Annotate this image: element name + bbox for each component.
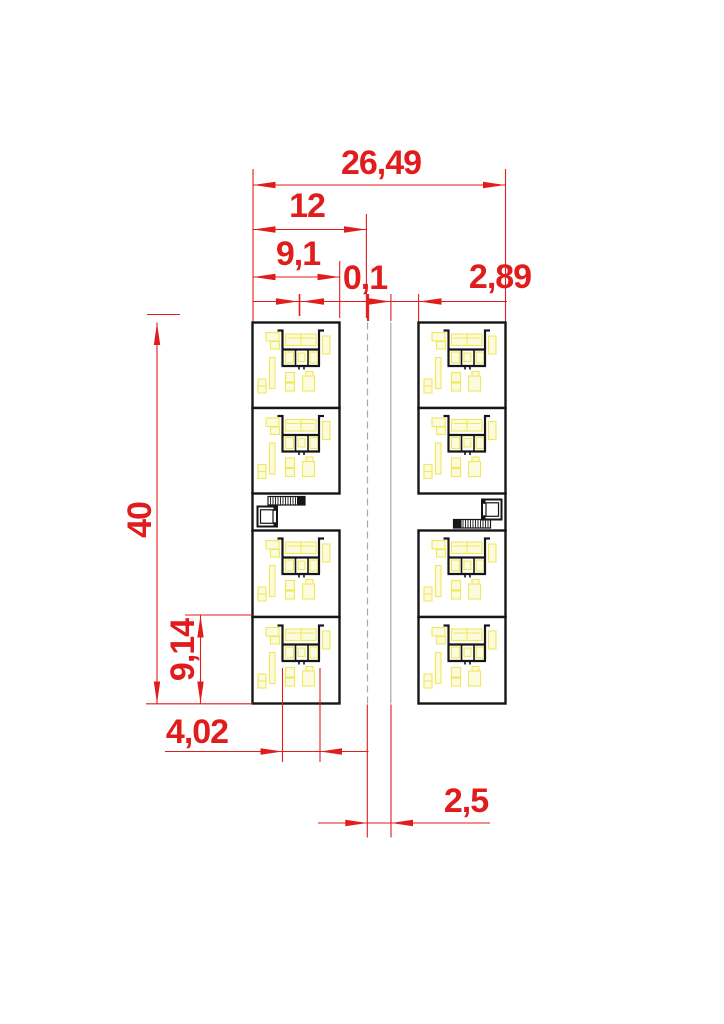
dim-label-total-height: 40 [123, 502, 157, 538]
dim-label-total-width: 26,49 [341, 146, 421, 180]
dim-label-building-width: 12 [289, 189, 325, 223]
dim-label-corridor-width: 2,89 [469, 260, 531, 294]
dim-label-pod-width: 4,02 [166, 715, 228, 749]
dim-label-room-depth: 9,1 [276, 237, 320, 271]
stair [268, 497, 305, 506]
stair [454, 520, 491, 529]
dim-label-room-height: 9,14 [166, 619, 200, 681]
elevator [258, 507, 278, 527]
floor-plan-canvas: 26,49 12 9,1 0,1 2,89 40 9,14 4,02 2,5 [0, 0, 724, 1024]
right-building [419, 323, 506, 704]
dim-label-offset: 0,1 [343, 261, 387, 295]
left-building [253, 323, 340, 704]
elevator [482, 500, 502, 520]
dim-label-gap-width: 2,5 [444, 784, 488, 818]
site-boundary-lines [368, 323, 391, 704]
